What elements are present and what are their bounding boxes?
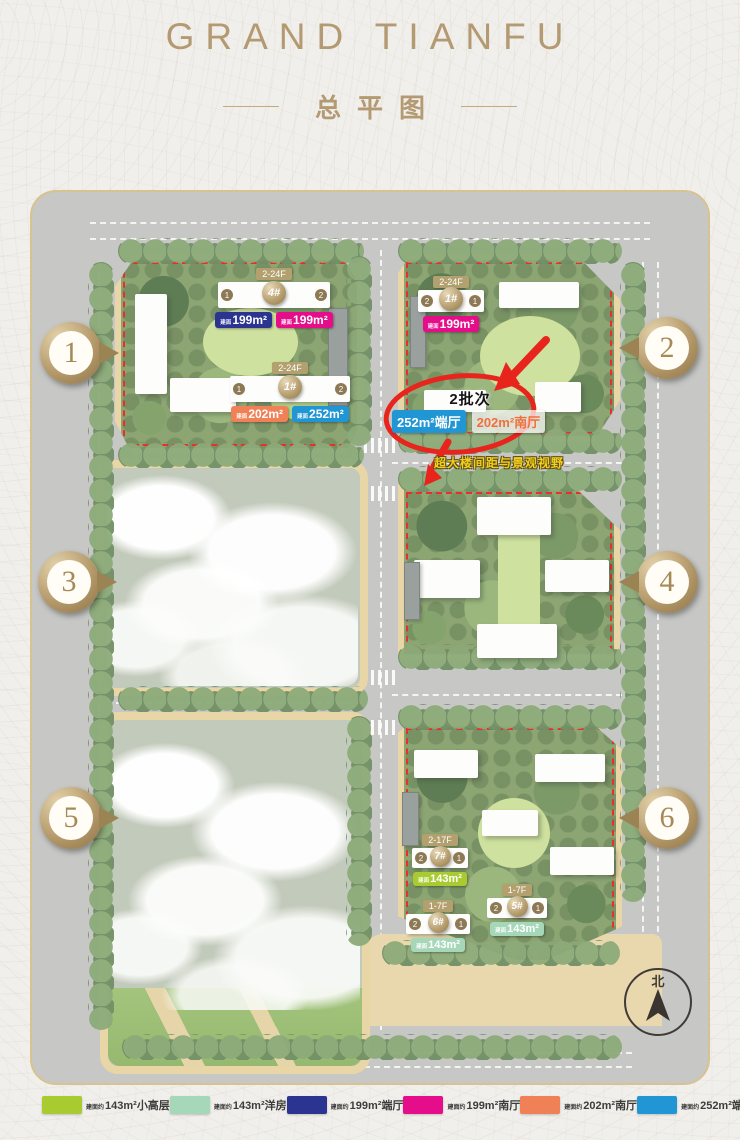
legend-value: 199m²端厅 bbox=[350, 1100, 404, 1112]
marker-ring: 1 bbox=[40, 322, 102, 384]
legend-item: 建面约199m²南厅 bbox=[403, 1096, 520, 1114]
area-value: 143m² bbox=[507, 923, 539, 935]
building-label-5: 1-7F 2 5# 1 建面 143m² bbox=[487, 884, 547, 936]
legend-label: 建面约143m²小高层 bbox=[86, 1097, 170, 1113]
area-prefix: 建面 bbox=[416, 942, 427, 950]
marker-number: 3 bbox=[47, 560, 91, 604]
area-badge: 建面 143m² bbox=[490, 922, 544, 936]
building-number: 1# bbox=[439, 287, 463, 311]
building-number: 5# bbox=[507, 896, 528, 917]
area-badge: 建面 143m² bbox=[411, 938, 465, 952]
plot-marker-3: 3 bbox=[38, 551, 100, 613]
building-number: 1# bbox=[278, 375, 302, 399]
legend-prefix: 建面约 bbox=[564, 1105, 582, 1111]
legend-prefix: 建面约 bbox=[331, 1105, 349, 1111]
area-value: 199m² bbox=[232, 313, 267, 327]
area-prefix: 建面 bbox=[281, 318, 292, 326]
unit-number: 1 bbox=[221, 289, 233, 301]
area-prefix: 建面 bbox=[418, 876, 429, 884]
building-number: 7# bbox=[430, 846, 451, 867]
decorative-line bbox=[223, 106, 279, 107]
poster: GRAND TIANFU 总平图 bbox=[0, 0, 740, 1140]
building bbox=[414, 560, 480, 598]
legend-label: 建面约252m²端厅 bbox=[681, 1097, 740, 1113]
building-bar: 2 6# 1 bbox=[406, 914, 470, 934]
floors-badge: 1-7F bbox=[423, 900, 454, 912]
legend-item: 建面约143m²小高层 bbox=[42, 1096, 170, 1114]
plot-marker-4: 4 bbox=[636, 551, 698, 613]
marker-number: 1 bbox=[49, 331, 93, 375]
decorative-line bbox=[461, 106, 517, 107]
legend-value: 143m²洋房 bbox=[233, 1100, 287, 1112]
area-prefix: 建面 bbox=[297, 412, 308, 420]
floors-badge: 2-17F bbox=[422, 834, 458, 846]
building-number: 4# bbox=[262, 281, 286, 305]
legend-prefix: 建面约 bbox=[214, 1105, 232, 1111]
floors-badge: 1-7F bbox=[502, 884, 533, 896]
building-bar: 1 4# 2 bbox=[218, 282, 330, 308]
legend-swatch bbox=[520, 1096, 560, 1114]
building-bar: 2 7# 1 bbox=[412, 848, 468, 868]
unit-number: 2 bbox=[335, 383, 347, 395]
legend-label: 建面约143m²洋房 bbox=[214, 1097, 287, 1113]
unit-number: 2 bbox=[415, 852, 427, 864]
legend-swatch bbox=[637, 1096, 677, 1114]
legend-swatch bbox=[287, 1096, 327, 1114]
plot-5 bbox=[100, 712, 370, 1074]
area-value: 143m² bbox=[430, 873, 462, 885]
north-arrow-icon bbox=[644, 989, 672, 1023]
plot-3 bbox=[96, 460, 368, 696]
building bbox=[477, 497, 551, 535]
crosswalk bbox=[364, 486, 398, 501]
site-plan-map: 2-24F 1 4# 2 建面 199m² 建面 199m² 2-24F 1 bbox=[30, 190, 710, 1085]
legend-item: 建面约143m²洋房 bbox=[170, 1096, 287, 1114]
legend-item: 建面约199m²端厅 bbox=[287, 1096, 404, 1114]
park-strip bbox=[108, 988, 362, 1066]
floors-badge: 2-24F bbox=[272, 362, 308, 374]
batch-badges: 252m²端厅 202m²南厅 bbox=[392, 410, 545, 433]
building-label-4: 2-24F 1 4# 2 建面 199m² 建面 199m² bbox=[218, 268, 330, 328]
north-compass: 北 bbox=[624, 968, 692, 1036]
legend-label: 建面约199m²端厅 bbox=[331, 1097, 404, 1113]
marker-number: 5 bbox=[49, 796, 93, 840]
unit-number: 2 bbox=[421, 295, 433, 307]
legend-value: 143m²小高层 bbox=[105, 1100, 170, 1112]
building-label-7: 2-17F 2 7# 1 建面 143m² bbox=[412, 834, 468, 886]
area-prefix: 建面 bbox=[236, 412, 247, 420]
area-badge: 建面 199m² bbox=[215, 312, 272, 328]
building bbox=[499, 282, 579, 308]
building-bar: 2 1# 1 bbox=[418, 290, 484, 312]
legend-label: 建面约199m²南厅 bbox=[447, 1097, 520, 1113]
plot-marker-1: 1 bbox=[40, 322, 102, 384]
building-label-1a: 2-24F 1 1# 2 建面 202m² 建面 252m² bbox=[230, 362, 350, 422]
area-badge: 建面 199m² bbox=[423, 316, 480, 332]
building bbox=[170, 378, 236, 412]
brand-title: GRAND TIANFU bbox=[0, 16, 740, 58]
road-marking bbox=[380, 250, 382, 1030]
marker-ring: 5 bbox=[40, 787, 102, 849]
unit-number: 2 bbox=[490, 902, 502, 914]
area-badge: 建面 252m² bbox=[292, 406, 349, 422]
building bbox=[404, 562, 420, 620]
area-badges: 建面 143m² bbox=[413, 872, 467, 886]
area-value: 202m² bbox=[248, 407, 283, 421]
unit-number: 2 bbox=[315, 289, 327, 301]
unit-number: 1 bbox=[455, 918, 467, 930]
building bbox=[135, 294, 167, 394]
area-value: 143m² bbox=[428, 939, 460, 951]
unit-number: 1 bbox=[453, 852, 465, 864]
building-number: 6# bbox=[428, 912, 449, 933]
road-marking bbox=[90, 238, 650, 240]
area-badge: 建面 202m² bbox=[231, 406, 288, 422]
area-value: 199m² bbox=[293, 313, 328, 327]
legend-swatch bbox=[42, 1096, 82, 1114]
building bbox=[414, 750, 478, 778]
area-value: 252m² bbox=[309, 407, 344, 421]
unit-number: 1 bbox=[532, 902, 544, 914]
building bbox=[535, 382, 581, 412]
area-badges: 建面 143m² bbox=[490, 922, 544, 936]
marker-ring: 3 bbox=[38, 551, 100, 613]
legend-item: 建面约252m²端厅 bbox=[637, 1096, 740, 1114]
legend-swatch bbox=[170, 1096, 210, 1114]
area-prefix: 建面 bbox=[495, 926, 506, 934]
marker-number: 6 bbox=[645, 796, 689, 840]
legend-swatch bbox=[403, 1096, 443, 1114]
building bbox=[477, 624, 557, 658]
cloud-cover bbox=[106, 470, 358, 686]
subtitle-row: 总平图 bbox=[0, 88, 740, 125]
marker-number: 4 bbox=[645, 560, 689, 604]
plot-marker-2: 2 bbox=[636, 317, 698, 379]
legend-prefix: 建面约 bbox=[86, 1105, 104, 1111]
building-bar: 1 1# 2 bbox=[230, 376, 350, 402]
batch-badge-orange: 202m²南厅 bbox=[472, 410, 546, 433]
crosswalk bbox=[364, 438, 398, 453]
unit-number: 1 bbox=[233, 383, 245, 395]
area-badges: 建面 199m² bbox=[423, 316, 480, 332]
building bbox=[545, 560, 609, 592]
road-marking bbox=[392, 694, 622, 696]
marker-ring: 6 bbox=[636, 787, 698, 849]
legend-label: 建面约202m²南厅 bbox=[564, 1097, 637, 1113]
legend-prefix: 建面约 bbox=[447, 1105, 465, 1111]
marker-ring: 4 bbox=[636, 551, 698, 613]
legend-value: 199m²南厅 bbox=[466, 1100, 520, 1112]
road-marking bbox=[90, 222, 650, 224]
building bbox=[535, 754, 605, 782]
marker-ring: 2 bbox=[636, 317, 698, 379]
unit-number: 1 bbox=[469, 295, 481, 307]
building bbox=[482, 810, 538, 836]
area-value: 199m² bbox=[440, 317, 475, 331]
legend-value: 252m²端厅 bbox=[700, 1100, 740, 1112]
marker-number: 2 bbox=[645, 326, 689, 370]
legend: 建面约143m²小高层 建面约143m²洋房 建面约199m²端厅 建面约199… bbox=[42, 1096, 708, 1114]
road-marking bbox=[116, 702, 362, 704]
area-badge: 建面 199m² bbox=[276, 312, 333, 328]
floors-badge: 2-24F bbox=[256, 268, 292, 280]
north-label: 北 bbox=[651, 975, 664, 989]
area-prefix: 建面 bbox=[220, 318, 231, 326]
building-label-1b: 2-24F 2 1# 1 建面 199m² bbox=[418, 276, 484, 332]
building bbox=[550, 847, 614, 875]
plot-marker-5: 5 bbox=[40, 787, 102, 849]
batch-label: 2批次 bbox=[438, 388, 502, 409]
legend-item: 建面约202m²南厅 bbox=[520, 1096, 637, 1114]
legend-prefix: 建面约 bbox=[681, 1105, 699, 1111]
view-note: 超大楼间距与景观视野 bbox=[434, 454, 564, 471]
cloud-cover bbox=[110, 722, 360, 1010]
building-bar: 2 5# 1 bbox=[487, 898, 547, 918]
area-prefix: 建面 bbox=[428, 322, 439, 330]
unit-number: 2 bbox=[409, 918, 421, 930]
plot-marker-6: 6 bbox=[636, 787, 698, 849]
building-label-6: 1-7F 2 6# 1 建面 143m² bbox=[406, 900, 470, 952]
batch-badge-blue: 252m²端厅 bbox=[392, 410, 466, 433]
area-badge: 建面 143m² bbox=[413, 872, 467, 886]
area-badges: 建面 199m² 建面 199m² bbox=[215, 312, 332, 328]
crosswalk bbox=[364, 670, 398, 685]
page-title: 总平图 bbox=[299, 88, 441, 125]
area-badges: 建面 202m² 建面 252m² bbox=[231, 406, 348, 422]
legend-value: 202m²南厅 bbox=[583, 1100, 637, 1112]
area-badges: 建面 143m² bbox=[411, 938, 465, 952]
